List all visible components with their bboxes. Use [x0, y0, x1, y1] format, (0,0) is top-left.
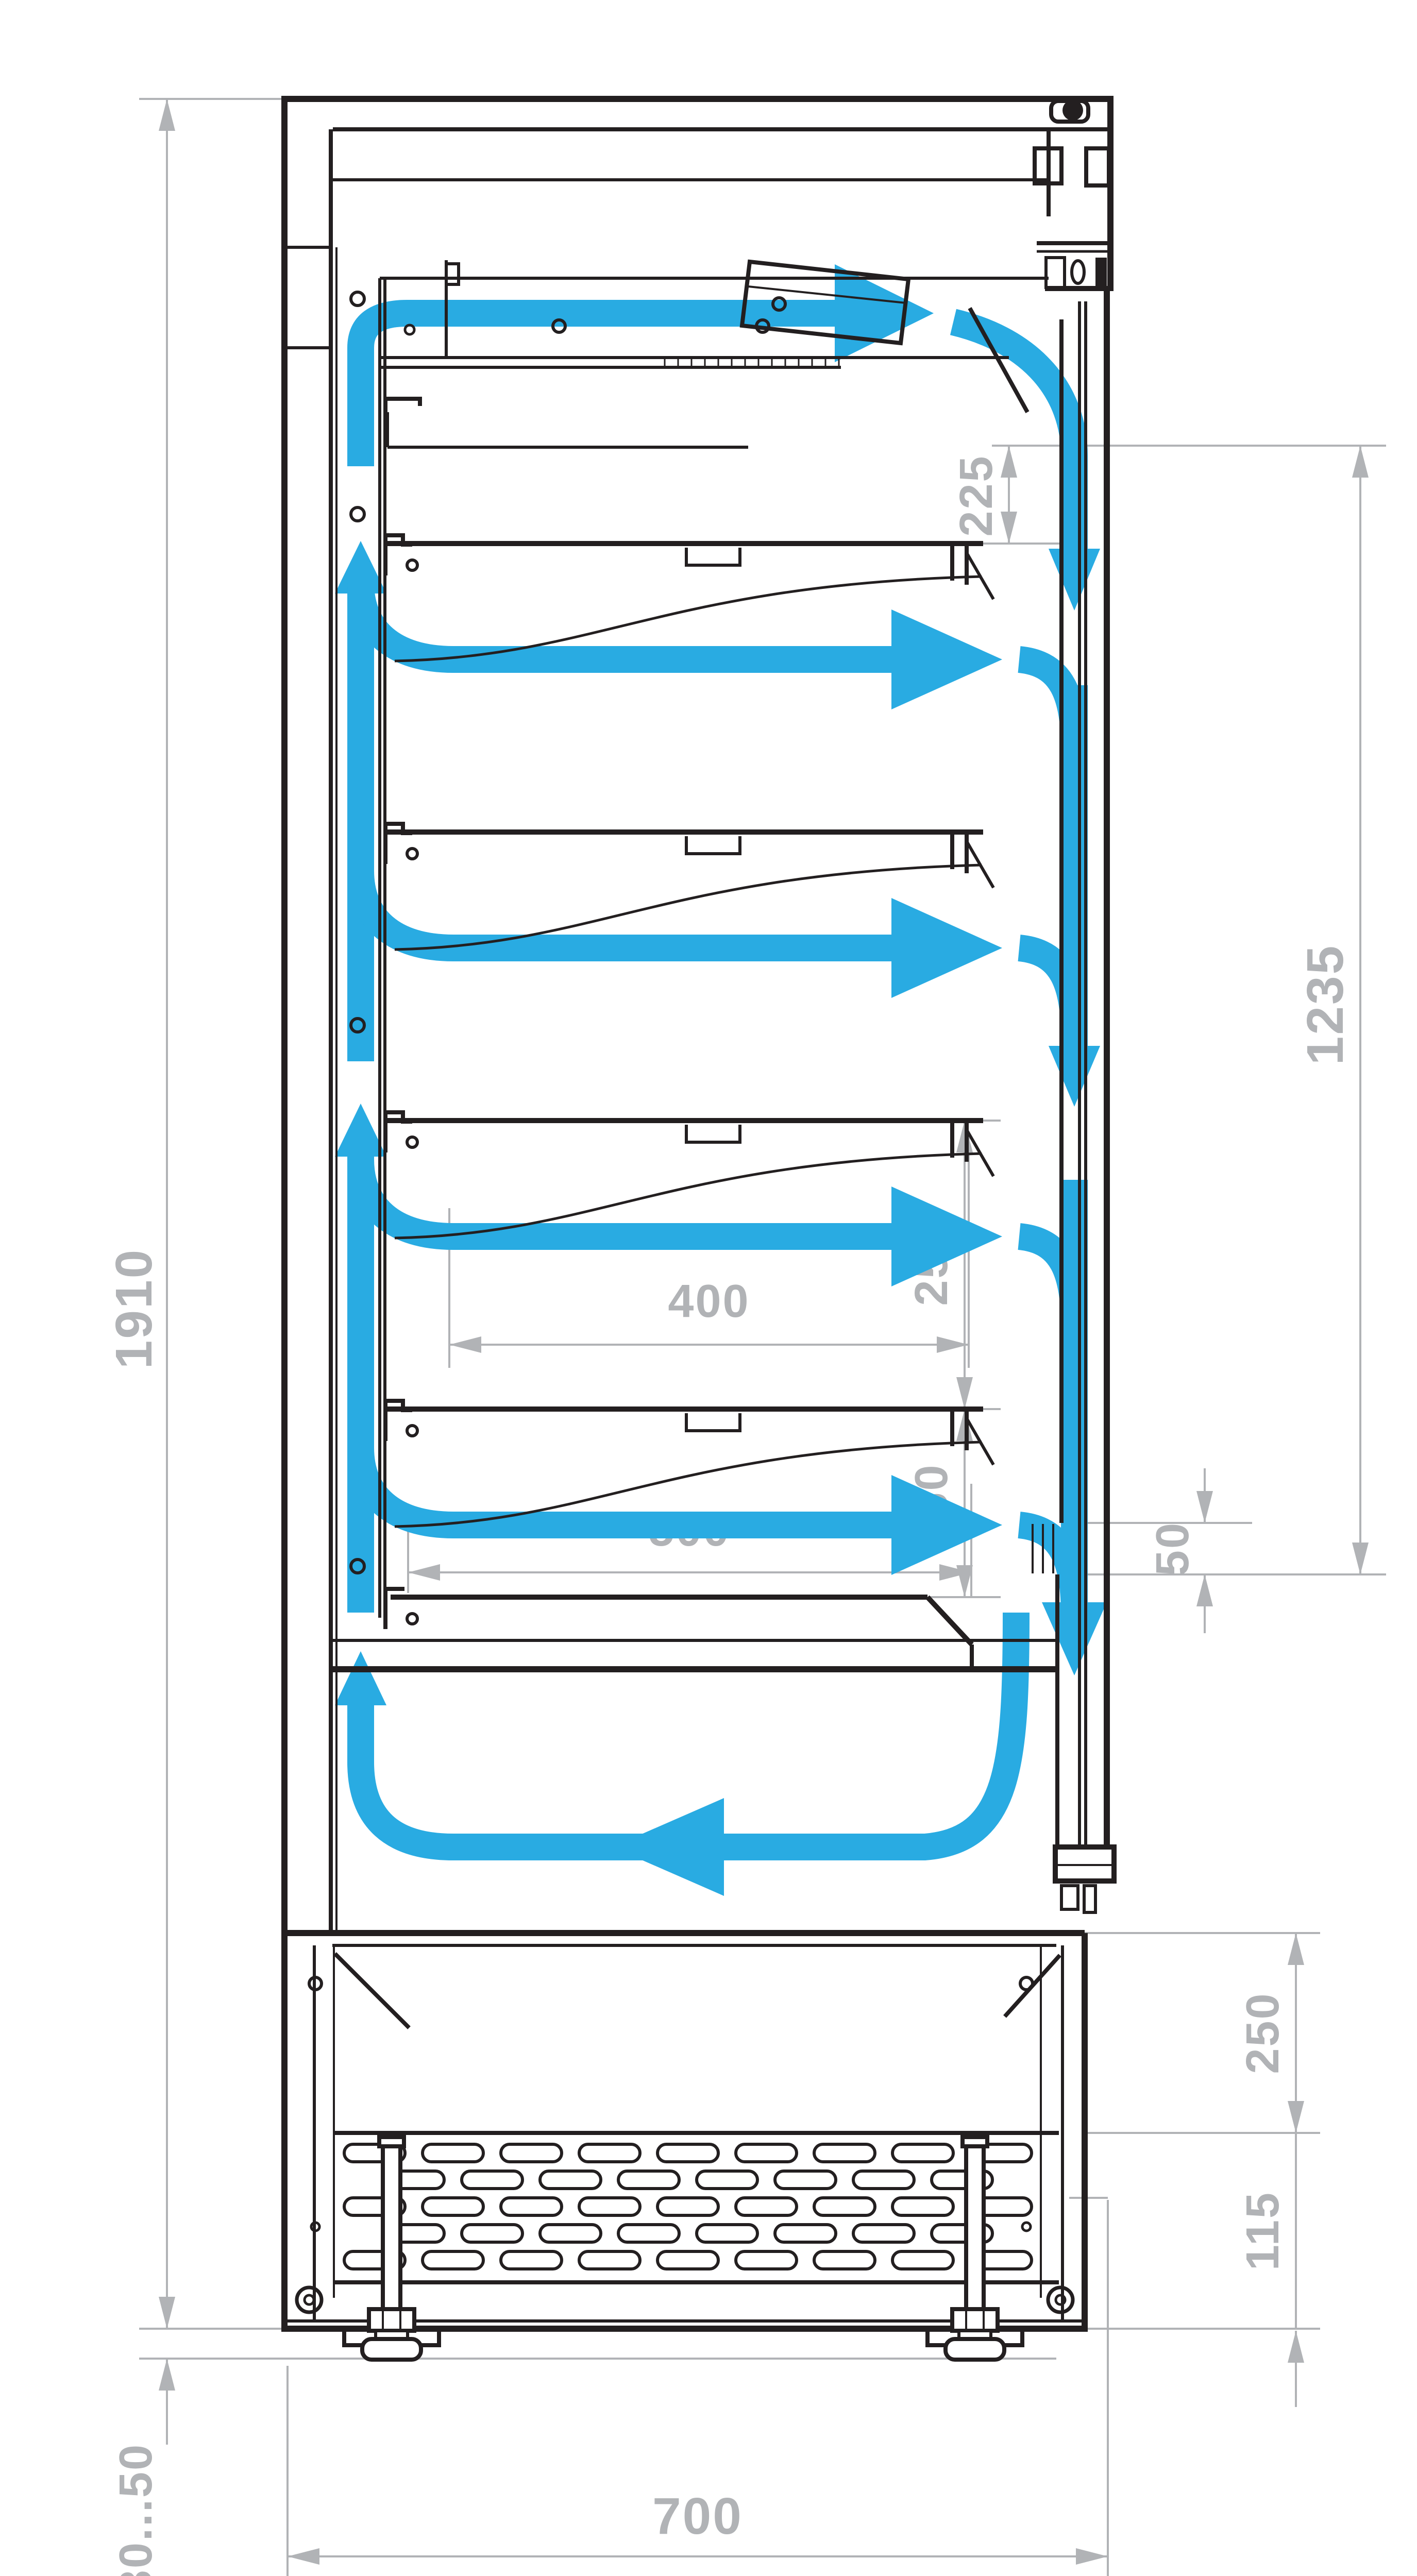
dimension-arrowhead-icon [1288, 1933, 1304, 1965]
diagram-page: 1910 30...50 700 225 1235 50 250 260 [0, 0, 1417, 2576]
shelf-clip [686, 1413, 740, 1431]
bottom-deck [391, 1597, 972, 1645]
dim-return-slot: 50 [1147, 1521, 1199, 1576]
ventilation-grille [344, 2144, 1032, 2269]
dimension-arrowhead-icon [956, 1377, 973, 1409]
panel-hole-icon [351, 292, 364, 306]
shelf-hole-icon [407, 560, 417, 570]
dim-machine-compartment: 250 [1237, 1992, 1289, 2074]
grille-slot [814, 2144, 875, 2162]
air-curtain-arrowhead-icon [1049, 549, 1100, 611]
bottom-hinge-part [1084, 1886, 1095, 1912]
foot-pad [946, 2339, 1004, 2360]
shelf-hole-icon [407, 1137, 417, 1147]
grille-slot [579, 2198, 640, 2215]
dim-overall-height: 1910 [105, 1248, 163, 1369]
shelf-clip [686, 836, 740, 854]
dimension-arrowhead-icon [1001, 512, 1017, 544]
bottom-hinge-part [1061, 1886, 1078, 1909]
return-duct-elbow [361, 1705, 662, 1847]
dim-feet-adjust: 30...50 [110, 2443, 162, 2576]
shelf-airflow-arrows [361, 582, 1074, 1617]
deck-edge [385, 1589, 972, 1669]
grille-slot [540, 2225, 601, 2242]
grille-slot [501, 2144, 562, 2162]
corner-bolt-icon [305, 2295, 314, 2304]
bolt-hole-icon [1020, 1977, 1033, 1990]
shelf-airflow-arrow [361, 582, 891, 659]
dimension-arrowhead-icon [1196, 1574, 1213, 1606]
wall-joint [284, 247, 331, 348]
dim-shelf-depth: 400 [668, 1276, 750, 1327]
shelf-hole-icon [407, 849, 417, 859]
grille-slot [892, 2198, 953, 2215]
dim-opening-height: 1235 [1296, 944, 1354, 1065]
grille-slot [462, 2225, 522, 2242]
door-closer-part [1046, 258, 1065, 287]
dimension-arrowhead-icon [1288, 2331, 1304, 2363]
hinge-block [1086, 148, 1109, 185]
dimension-arrowhead-icon [1352, 1543, 1369, 1574]
grille-slot [540, 2171, 601, 2189]
foot-spindle [966, 2142, 984, 2309]
grille-slot [423, 2144, 483, 2162]
dimension-arrowhead-icon [159, 99, 175, 131]
grille-slot [618, 2171, 679, 2189]
grille-slot [853, 2171, 914, 2189]
grille-slot [501, 2251, 562, 2269]
lamp-bracket [385, 399, 420, 412]
grille-slot [657, 2144, 718, 2162]
base-liner [334, 1945, 1041, 2298]
dimension-arrowhead-icon [1196, 1491, 1213, 1523]
grille-slot [657, 2251, 718, 2269]
dim-canopy-to-shelf: 225 [951, 454, 1002, 536]
dimension-arrowhead-icon [288, 2548, 319, 2565]
deck-hole-icon [407, 1614, 417, 1624]
top-duct-airflow-arrow [361, 313, 835, 466]
dimension-arrowhead-icon [1001, 446, 1017, 478]
foot-spindle-cap [379, 2137, 404, 2146]
air-curtain-arrowhead-icon [1049, 1046, 1100, 1107]
dimension-arrowhead-icon [449, 1336, 481, 1353]
dimension-arrowhead-icon [1352, 446, 1369, 478]
foot-nut [952, 2309, 998, 2331]
grille-slot [423, 2198, 483, 2215]
corner-bolt-icon [297, 2287, 322, 2312]
corner-gusset [335, 1954, 1060, 2028]
grille-slot [736, 2251, 797, 2269]
corner-bolt-icon [1048, 2287, 1073, 2312]
grille-slot [423, 2251, 483, 2269]
grille-slot [892, 2251, 953, 2269]
foot-spindle-cap [963, 2137, 987, 2146]
curtain-connector-curve [1019, 659, 1074, 751]
grille-slot [736, 2198, 797, 2215]
grille-slot [736, 2144, 797, 2162]
curtain-connector-curve [1019, 1236, 1074, 1328]
grille-slot [697, 2225, 757, 2242]
grille-slot [775, 2171, 836, 2189]
foot-pad [362, 2339, 421, 2360]
dimension-arrowhead-icon [408, 1564, 440, 1581]
dimension-arrowhead-icon [159, 2359, 175, 2391]
grille-slot [697, 2171, 757, 2189]
dimension-arrowheads [159, 99, 1369, 2565]
grille-slot [814, 2251, 875, 2269]
shelf-hole-icon [407, 1426, 417, 1436]
grille-slot [892, 2144, 953, 2162]
foot-nut [369, 2309, 414, 2331]
door-seal [1095, 258, 1107, 287]
grille-slot [814, 2198, 875, 2215]
foot-spindle [383, 2142, 400, 2309]
dim-overall-depth: 700 [652, 2487, 743, 2545]
shelf-airflow-arrow [361, 1159, 891, 1236]
hinge-pivot-icon [1062, 100, 1083, 121]
rear-duct-up-arrowhead-icon [335, 1651, 386, 1705]
bolt-hole-icon [1022, 2223, 1031, 2231]
dimension-arrowhead-icon [1288, 2101, 1304, 2133]
grille-slot [657, 2198, 718, 2215]
cabinet-section-diagram: 1910 30...50 700 225 1235 50 250 260 [0, 0, 1417, 2576]
grille-slot [775, 2225, 836, 2242]
grille-slot [853, 2225, 914, 2242]
grille-slot [501, 2198, 562, 2215]
shelf-arrowhead-icon [891, 609, 1002, 709]
shelf-clip [686, 1125, 740, 1142]
door-closer-roller-icon [1072, 261, 1084, 283]
panel-hole-icon [351, 507, 364, 521]
dimension-arrowhead-icon [1076, 2548, 1108, 2565]
grille-slot [579, 2251, 640, 2269]
shelf-airflow-arrow [361, 871, 891, 948]
shelf-clip [686, 548, 740, 565]
shelf-arrowhead-icon [891, 898, 1002, 998]
grille-slot [462, 2171, 522, 2189]
shelf-airflow-arrow [361, 1448, 891, 1525]
dim-grille-height: 115 [1237, 2191, 1289, 2270]
grille-slot [579, 2144, 640, 2162]
grille-slot [618, 2225, 679, 2242]
dimension-arrowhead-icon [159, 2297, 175, 2329]
curtain-connector-curve [1019, 948, 1074, 1040]
canopy-underside [387, 412, 748, 447]
